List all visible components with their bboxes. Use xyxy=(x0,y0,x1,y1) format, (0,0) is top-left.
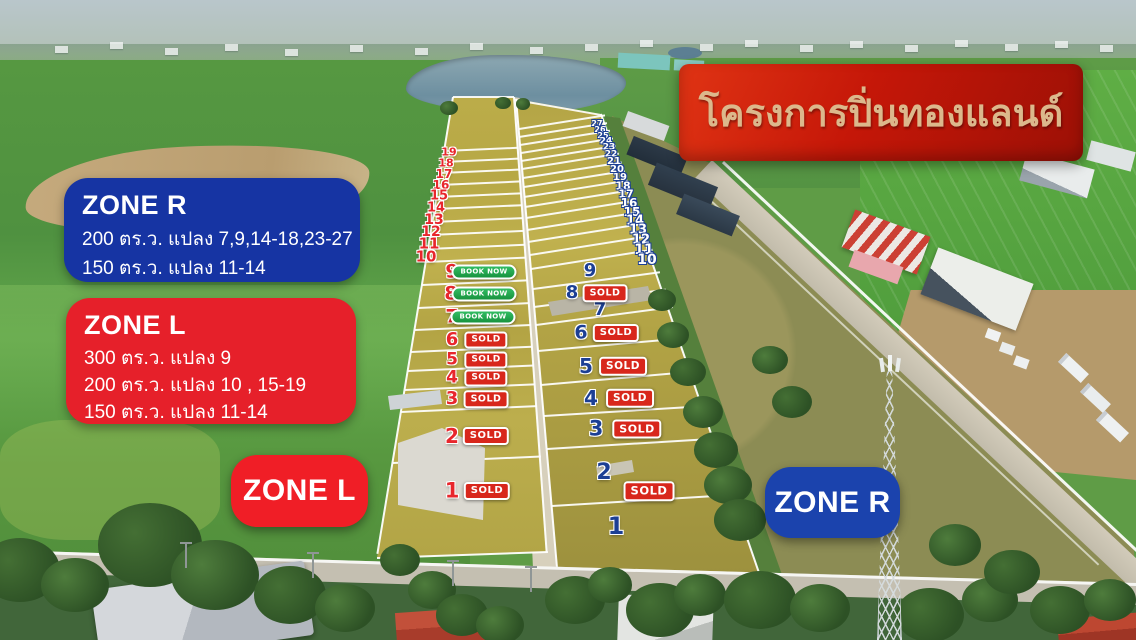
tree xyxy=(670,358,706,387)
sold-badge: SOLD xyxy=(464,352,507,369)
power-pole-crossbar xyxy=(525,566,537,568)
tree xyxy=(41,558,109,612)
distant-building xyxy=(955,40,968,47)
plot-number-2: 2 xyxy=(596,462,611,484)
plot-number-2: 2 xyxy=(445,426,459,446)
power-pole xyxy=(185,542,187,568)
distant-building xyxy=(905,45,918,52)
sold-badge: SOLD xyxy=(464,370,507,387)
project-title: โครงการปิ่นทองแลนด์ xyxy=(699,82,1064,143)
plot-number-4: 4 xyxy=(446,370,458,387)
plot-number-1: 1 xyxy=(445,481,460,502)
distant-building xyxy=(415,48,428,55)
zone-l-button[interactable]: ZONE L xyxy=(231,455,368,527)
sold-badge: SOLD xyxy=(599,357,647,376)
distant-building xyxy=(850,41,863,48)
distant-building xyxy=(165,48,178,55)
distant-building xyxy=(1055,41,1068,48)
zone-l-info-line-1: 300 ตร.ว. แปลง 9 xyxy=(84,345,340,372)
tree xyxy=(790,584,850,632)
distant-building xyxy=(700,44,713,51)
distant-building xyxy=(1100,45,1113,52)
tree xyxy=(683,396,723,428)
sold-badge: SOLD xyxy=(464,482,510,500)
zone-r-info-line-1: 200 ตร.ว. แปลง 7,9,14-18,23-27 xyxy=(82,225,344,254)
plot-number-9: 9 xyxy=(584,262,597,280)
zone-r-button[interactable]: ZONE R xyxy=(765,467,900,538)
tree xyxy=(516,98,530,109)
distant-building xyxy=(470,43,483,50)
tree xyxy=(674,574,726,616)
distant-building xyxy=(1005,44,1018,51)
power-pole-crossbar xyxy=(307,552,319,554)
distant-building xyxy=(800,45,813,52)
zone-r-info-title: ZONE R xyxy=(82,190,344,221)
plot-number-3: 3 xyxy=(446,390,459,408)
distant-building xyxy=(110,42,123,49)
tower-antenna-mid xyxy=(888,355,892,371)
zone-l-info-box: ZONE L 300 ตร.ว. แปลง 9 200 ตร.ว. แปลง 1… xyxy=(66,298,356,424)
plot-number-5: 5 xyxy=(579,356,593,376)
tree xyxy=(254,566,326,624)
sold-badge: SOLD xyxy=(464,390,509,408)
plot-number-6: 6 xyxy=(446,331,459,349)
power-pole xyxy=(530,566,532,592)
plot-number-7: 7 xyxy=(594,301,607,319)
pond-small xyxy=(668,47,702,59)
tree xyxy=(896,588,964,640)
teal-building xyxy=(618,53,671,71)
plot-number-1: 1 xyxy=(608,514,625,538)
project-title-banner: โครงการปิ่นทองแลนด์ xyxy=(679,64,1083,161)
tree xyxy=(648,289,676,311)
tree xyxy=(380,544,420,576)
sold-badge: SOLD xyxy=(612,420,661,439)
tree xyxy=(588,567,632,602)
tree xyxy=(752,346,788,375)
tree xyxy=(929,524,981,566)
distant-building xyxy=(530,47,543,54)
zone-r-info-box: ZONE R 200 ตร.ว. แปลง 7,9,14-18,23-27 15… xyxy=(64,178,360,282)
book-now-badge[interactable]: BOOK NOW xyxy=(451,265,516,280)
tree xyxy=(1030,586,1090,634)
power-pole-crossbar xyxy=(447,560,459,562)
zone-l-info-line-2: 200 ตร.ว. แปลง 10 , 15-19 xyxy=(84,372,340,399)
book-now-badge[interactable]: BOOK NOW xyxy=(450,310,515,325)
zone-l-info-line-3: 150 ตร.ว. แปลง 11-14 xyxy=(84,399,340,426)
sold-badge: SOLD xyxy=(583,284,628,302)
tree xyxy=(315,584,375,632)
power-pole xyxy=(452,560,454,586)
zone-l-button-label: ZONE L xyxy=(243,474,356,508)
tree xyxy=(694,432,738,467)
plot-number-5: 5 xyxy=(446,352,458,369)
distant-building xyxy=(350,45,363,52)
distant-building xyxy=(285,49,298,56)
zone-r-info-line-2: 150 ตร.ว. แปลง 11-14 xyxy=(82,254,344,283)
tree xyxy=(984,550,1040,595)
sold-badge: SOLD xyxy=(464,332,507,349)
plot-number-6: 6 xyxy=(574,324,587,343)
tree xyxy=(724,571,796,629)
sold-badge: SOLD xyxy=(624,481,675,501)
tree xyxy=(657,322,689,348)
plot-number-4: 4 xyxy=(584,388,598,408)
tree xyxy=(1084,579,1136,621)
distant-building xyxy=(640,40,653,47)
tree xyxy=(714,499,766,541)
book-now-badge[interactable]: BOOK NOW xyxy=(451,287,516,302)
zone-l-info-title: ZONE L xyxy=(84,310,340,341)
distant-building xyxy=(55,46,68,53)
tree xyxy=(772,386,812,418)
sold-badge: SOLD xyxy=(593,324,639,342)
plot-number-3: 3 xyxy=(589,419,604,440)
aerial-plot-map: โครงการปิ่นทองแลนด์ ZONE R 200 ตร.ว. แปล… xyxy=(0,0,1136,640)
tree xyxy=(476,606,524,640)
tree xyxy=(440,101,458,115)
power-pole-crossbar xyxy=(180,542,192,544)
sold-badge: SOLD xyxy=(463,427,509,445)
distant-building xyxy=(225,44,238,51)
plot-number-10: 10 xyxy=(637,253,656,267)
zone-r-button-label: ZONE R xyxy=(774,486,890,520)
sold-badge: SOLD xyxy=(606,389,654,408)
power-pole xyxy=(312,552,314,578)
plot-number-8: 8 xyxy=(566,284,579,302)
distant-building xyxy=(745,40,758,47)
distant-building xyxy=(585,44,598,51)
plot-number-10: 10 xyxy=(416,250,437,265)
